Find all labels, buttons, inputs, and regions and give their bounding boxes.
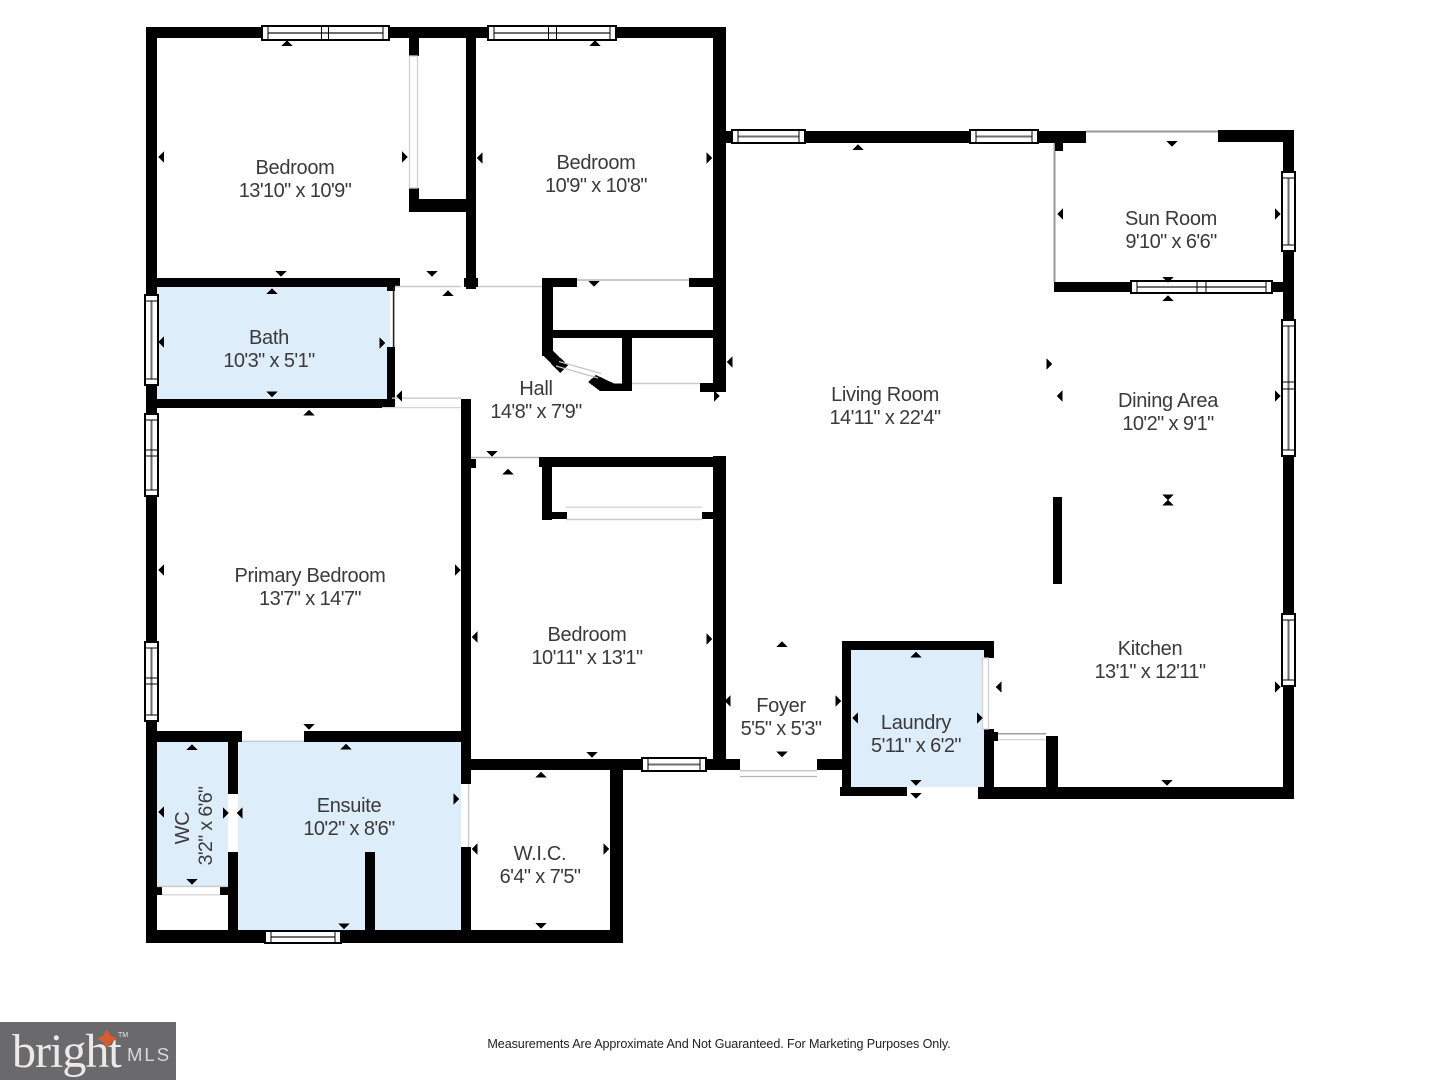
svg-text:Hall: Hall <box>519 378 552 400</box>
svg-text:Bath: Bath <box>249 327 289 349</box>
svg-text:3'2" x 6'6": 3'2" x 6'6" <box>195 786 217 865</box>
svg-text:14'11" x 22'4": 14'11" x 22'4" <box>830 407 941 429</box>
svg-text:14'8" x 7'9": 14'8" x 7'9" <box>490 401 582 423</box>
svg-text:13'10" x 10'9": 13'10" x 10'9" <box>239 180 352 202</box>
svg-text:10'2" x 9'1": 10'2" x 9'1" <box>1122 413 1214 435</box>
svg-text:5'11" x 6'2": 5'11" x 6'2" <box>871 735 961 757</box>
svg-text:Kitchen: Kitchen <box>1118 638 1183 660</box>
svg-text:Laundry: Laundry <box>881 712 951 734</box>
svg-text:10'9" x 10'8": 10'9" x 10'8" <box>545 175 647 197</box>
svg-text:10'2" x 8'6": 10'2" x 8'6" <box>303 818 395 840</box>
svg-text:TM: TM <box>118 1032 128 1039</box>
svg-text:Sun Room: Sun Room <box>1125 208 1217 230</box>
svg-text:5'5" x 5'3": 5'5" x 5'3" <box>741 718 822 740</box>
svg-text:Bedroom: Bedroom <box>556 152 635 174</box>
svg-text:6'4" x 7'5": 6'4" x 7'5" <box>500 866 581 888</box>
svg-text:Bedroom: Bedroom <box>547 624 626 646</box>
svg-text:Dining Area: Dining Area <box>1118 390 1219 412</box>
svg-text:Foyer: Foyer <box>756 695 806 717</box>
svg-text:Bedroom: Bedroom <box>255 157 334 179</box>
svg-text:10'11" x 13'1": 10'11" x 13'1" <box>532 647 643 669</box>
svg-text:Living Room: Living Room <box>831 384 939 406</box>
svg-text:W.I.C.: W.I.C. <box>514 843 567 865</box>
svg-text:10'3" x 5'1": 10'3" x 5'1" <box>223 350 315 372</box>
svg-text:Ensuite: Ensuite <box>317 795 382 817</box>
svg-text:WC: WC <box>172 812 194 845</box>
svg-text:13'7" x 14'7": 13'7" x 14'7" <box>259 588 361 610</box>
svg-text:Primary Bedroom: Primary Bedroom <box>234 565 385 587</box>
svg-text:13'1" x 12'11": 13'1" x 12'11" <box>1095 661 1206 683</box>
svg-text:MLS: MLS <box>127 1044 171 1065</box>
svg-text:9'10" x 6'6": 9'10" x 6'6" <box>1125 231 1217 253</box>
svg-text:Measurements Are Approximate A: Measurements Are Approximate And Not Gua… <box>487 1037 950 1051</box>
